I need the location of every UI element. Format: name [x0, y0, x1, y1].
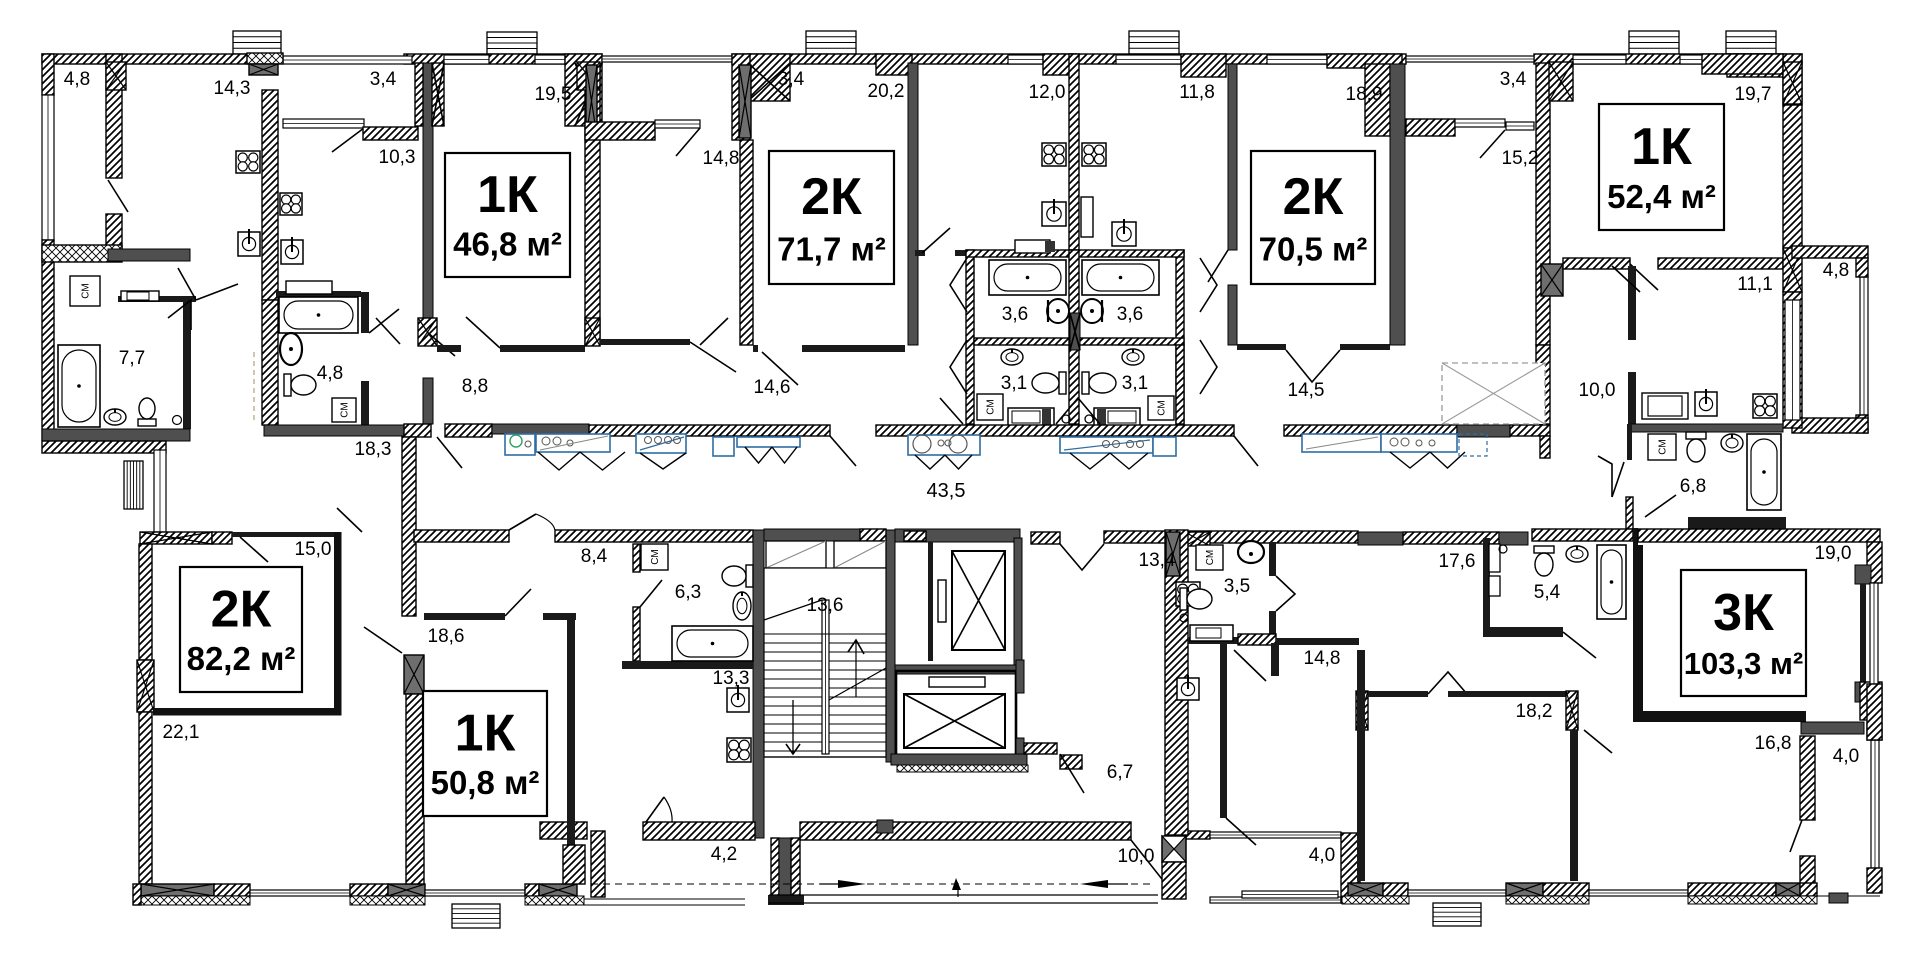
svg-text:16,8: 16,8 — [1755, 733, 1792, 754]
svg-text:3,5: 3,5 — [1224, 576, 1250, 597]
svg-text:3,6: 3,6 — [1117, 304, 1143, 325]
svg-text:71,7 м²: 71,7 м² — [777, 231, 886, 268]
svg-text:14,8: 14,8 — [1304, 648, 1341, 669]
svg-text:11,1: 11,1 — [1737, 274, 1773, 295]
svg-text:50,8 м²: 50,8 м² — [431, 764, 540, 801]
svg-text:10,3: 10,3 — [379, 147, 416, 168]
svg-text:6,7: 6,7 — [1107, 762, 1133, 783]
svg-text:14,3: 14,3 — [214, 78, 251, 99]
svg-text:6,3: 6,3 — [675, 582, 701, 603]
svg-text:13,6: 13,6 — [807, 595, 844, 616]
svg-text:19,7: 19,7 — [1735, 84, 1772, 105]
svg-text:19,0: 19,0 — [1815, 543, 1852, 564]
svg-text:46,8 м²: 46,8 м² — [453, 225, 562, 262]
svg-text:3,1: 3,1 — [1122, 373, 1148, 394]
svg-text:22,1: 22,1 — [163, 722, 200, 743]
svg-text:3К: 3К — [1713, 584, 1774, 642]
svg-text:13,4: 13,4 — [1139, 550, 1176, 571]
svg-text:4,2: 4,2 — [711, 844, 737, 865]
svg-text:1К: 1К — [455, 704, 516, 762]
svg-text:2К: 2К — [211, 580, 272, 638]
svg-text:13,3: 13,3 — [713, 668, 750, 689]
svg-text:52,4 м²: 52,4 м² — [1607, 178, 1716, 215]
svg-text:12,0: 12,0 — [1029, 82, 1066, 103]
svg-text:1К: 1К — [477, 166, 538, 224]
svg-text:2К: 2К — [1283, 168, 1344, 226]
svg-text:6,8: 6,8 — [1680, 476, 1706, 497]
svg-text:18,3: 18,3 — [355, 439, 392, 460]
svg-text:СМ: СМ — [650, 549, 661, 564]
svg-text:19,5: 19,5 — [535, 84, 572, 105]
svg-text:20,2: 20,2 — [868, 81, 905, 102]
svg-text:18,6: 18,6 — [428, 626, 465, 647]
svg-text:17,6: 17,6 — [1439, 551, 1476, 572]
svg-text:3,4: 3,4 — [778, 69, 805, 90]
svg-text:15,2: 15,2 — [1502, 148, 1539, 169]
svg-text:15,0: 15,0 — [295, 539, 332, 560]
svg-text:2К: 2К — [801, 168, 862, 226]
svg-text:10,0: 10,0 — [1579, 380, 1616, 401]
svg-text:11,8: 11,8 — [1179, 82, 1215, 103]
svg-text:3,4: 3,4 — [1500, 69, 1527, 90]
svg-text:СМ: СМ — [1658, 439, 1669, 454]
svg-text:3,1: 3,1 — [1001, 373, 1027, 394]
svg-text:10,0: 10,0 — [1118, 846, 1155, 867]
svg-text:8,4: 8,4 — [581, 546, 608, 567]
svg-text:3,6: 3,6 — [1002, 304, 1028, 325]
svg-text:1К: 1К — [1631, 118, 1692, 176]
svg-text:14,5: 14,5 — [1288, 380, 1325, 401]
svg-text:СМ: СМ — [1205, 550, 1216, 565]
svg-text:5,4: 5,4 — [1534, 582, 1561, 603]
svg-text:82,2 м²: 82,2 м² — [187, 640, 296, 677]
svg-text:70,5 м²: 70,5 м² — [1259, 231, 1368, 268]
svg-text:14,6: 14,6 — [754, 377, 791, 398]
svg-text:СМ: СМ — [340, 402, 351, 417]
svg-text:4,8: 4,8 — [317, 363, 343, 384]
svg-text:3,4: 3,4 — [370, 69, 397, 90]
svg-text:4,0: 4,0 — [1309, 845, 1335, 866]
svg-text:14,8: 14,8 — [703, 148, 740, 169]
svg-text:СМ: СМ — [986, 399, 997, 414]
svg-text:СМ: СМ — [1157, 400, 1168, 415]
svg-text:4,0: 4,0 — [1833, 746, 1859, 767]
svg-text:7,7: 7,7 — [119, 348, 145, 369]
svg-text:4,8: 4,8 — [64, 69, 90, 90]
svg-text:4,8: 4,8 — [1823, 260, 1849, 281]
svg-text:СМ: СМ — [81, 283, 92, 298]
svg-text:43,5: 43,5 — [927, 480, 966, 502]
svg-text:18,9: 18,9 — [1346, 84, 1383, 105]
svg-text:18,2: 18,2 — [1516, 701, 1553, 722]
svg-text:8,8: 8,8 — [462, 376, 488, 397]
svg-text:103,3 м²: 103,3 м² — [1684, 646, 1803, 681]
